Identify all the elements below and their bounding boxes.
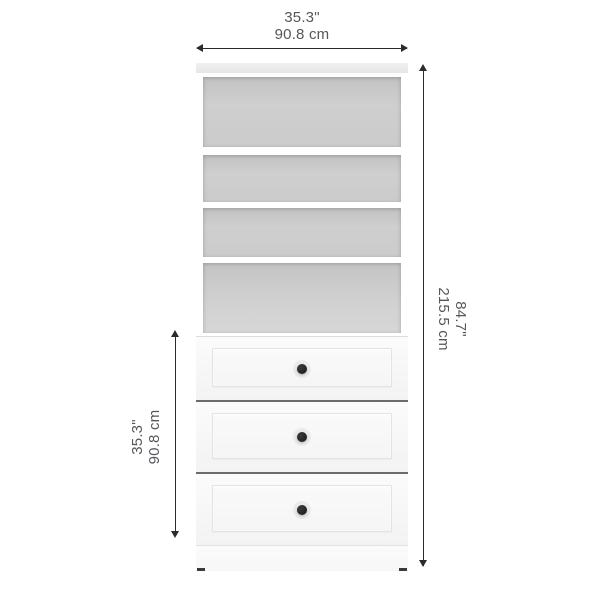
cabinet-top-panel: [196, 63, 408, 73]
arrowhead-down-icon: [419, 560, 427, 567]
shelf-compartment-2: [203, 155, 401, 202]
drawer-section-dimension-label: 35.3" 90.8 cm: [129, 337, 169, 537]
drawer-section-inches-text: 35.3": [129, 337, 146, 537]
drawer-2: [196, 402, 408, 472]
drawer-3: [196, 474, 408, 545]
arrowhead-up-icon: [419, 64, 427, 71]
height-cm-text: 215.5 cm: [435, 219, 452, 419]
arrowhead-right-icon: [401, 44, 408, 52]
drawer-3-knob: [297, 505, 307, 515]
width-inches-text: 35.3": [202, 9, 402, 26]
drawer-1: [196, 337, 408, 400]
shelf-compartment-4: [203, 263, 401, 333]
height-inches-text: 84.7": [452, 219, 469, 419]
storage-cabinet: [196, 63, 408, 570]
arrowhead-up-icon: [171, 330, 179, 337]
cabinet-foot-left: [197, 568, 205, 571]
height-dimension-line: [423, 68, 424, 566]
product-dimension-diagram: 35.3" 90.8 cm 84.7" 215.5 cm 35.3" 90.8 …: [0, 0, 600, 600]
cabinet-foot-right: [399, 568, 407, 571]
drawer-section-cm-text: 90.8 cm: [146, 337, 163, 537]
width-dimension-label: 35.3" 90.8 cm: [202, 9, 402, 43]
width-cm-text: 90.8 cm: [202, 26, 402, 43]
width-dimension-line: [197, 48, 407, 49]
drawer-1-knob: [297, 364, 307, 374]
height-dimension-label: 84.7" 215.5 cm: [429, 219, 469, 419]
shelf-compartment-3: [203, 208, 401, 257]
shelf-compartment-1: [203, 77, 401, 147]
cabinet-base: [196, 545, 408, 571]
drawer-2-knob: [297, 432, 307, 442]
arrowhead-left-icon: [196, 44, 203, 52]
drawer-section-dimension-line: [175, 334, 176, 536]
arrowhead-down-icon: [171, 531, 179, 538]
